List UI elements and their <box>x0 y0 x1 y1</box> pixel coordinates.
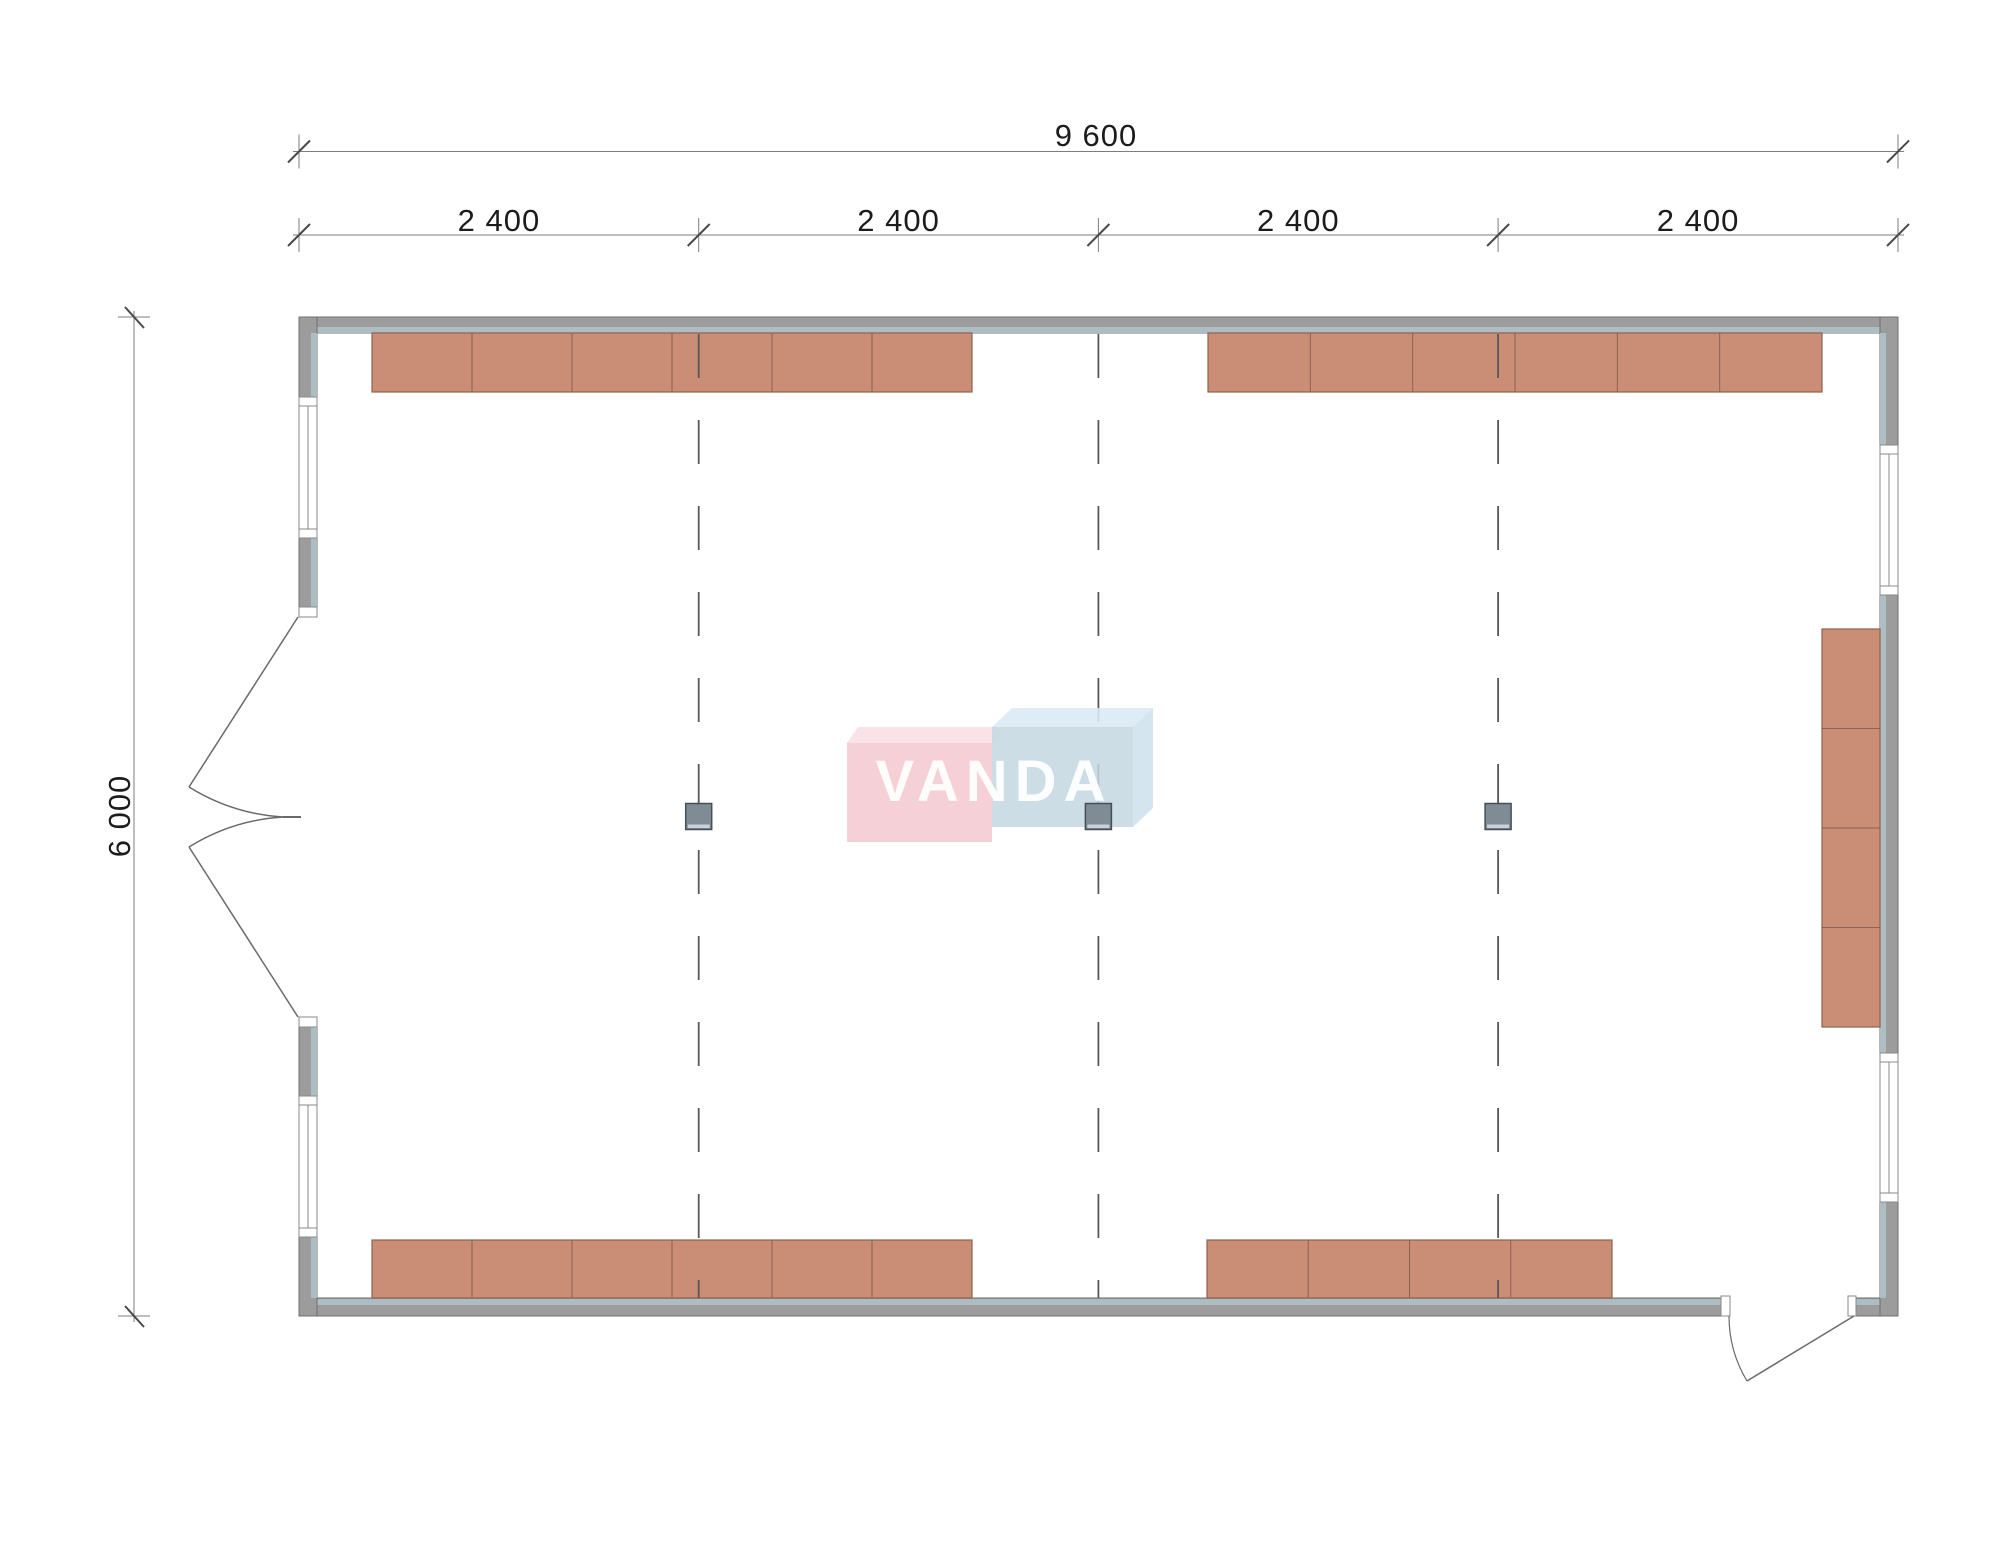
window-right-upper <box>1880 445 1898 595</box>
logo-wordmark: VANDA <box>876 749 1113 814</box>
logo-pink-box-top <box>847 727 1003 743</box>
logo-blue-box-top <box>992 708 1153 727</box>
door-jamb <box>1721 1296 1730 1316</box>
structural-column <box>686 804 712 830</box>
dim-label-bay: 2 400 <box>458 203 541 238</box>
structural-column <box>1485 804 1511 830</box>
cabinet-row-bottom-left <box>372 1240 972 1298</box>
door-jamb <box>299 1017 317 1027</box>
wall-bottom-inner-finish <box>317 1299 1880 1305</box>
window-right-lower <box>1880 1053 1898 1202</box>
dim-label-bay: 2 400 <box>1657 203 1740 238</box>
structural-column-base <box>688 825 710 829</box>
wall-top-inner-finish <box>317 327 1880 333</box>
dim-label-bay: 2 400 <box>1257 203 1340 238</box>
cabinet-column-right <box>1822 629 1880 1027</box>
structural-column-base <box>1087 825 1109 829</box>
cabinet-row-bottom-right <box>1207 1240 1612 1298</box>
window-left-lower <box>299 1096 317 1237</box>
dim-label-overall-height: 6 000 <box>102 775 137 858</box>
floor-plan-drawing: VANDA9 6002 4002 4002 4002 4006 000 <box>0 0 2000 1550</box>
logo-blue-box-side <box>1133 708 1153 827</box>
cabinet-row-top-left <box>372 333 972 392</box>
structural-column-base <box>1487 825 1509 829</box>
entry-door-opening <box>1730 1297 1848 1317</box>
floor-plan-canvas: VANDA9 6002 4002 4002 4002 4006 000 <box>0 0 2000 1550</box>
dim-label-overall-width: 9 600 <box>1055 118 1138 153</box>
structural-column <box>1085 804 1111 830</box>
door-jamb <box>1848 1296 1856 1316</box>
cabinet-row-top-right <box>1208 333 1822 392</box>
door-jamb <box>299 607 317 617</box>
dim-label-bay: 2 400 <box>857 203 940 238</box>
window-left-upper <box>299 397 317 538</box>
